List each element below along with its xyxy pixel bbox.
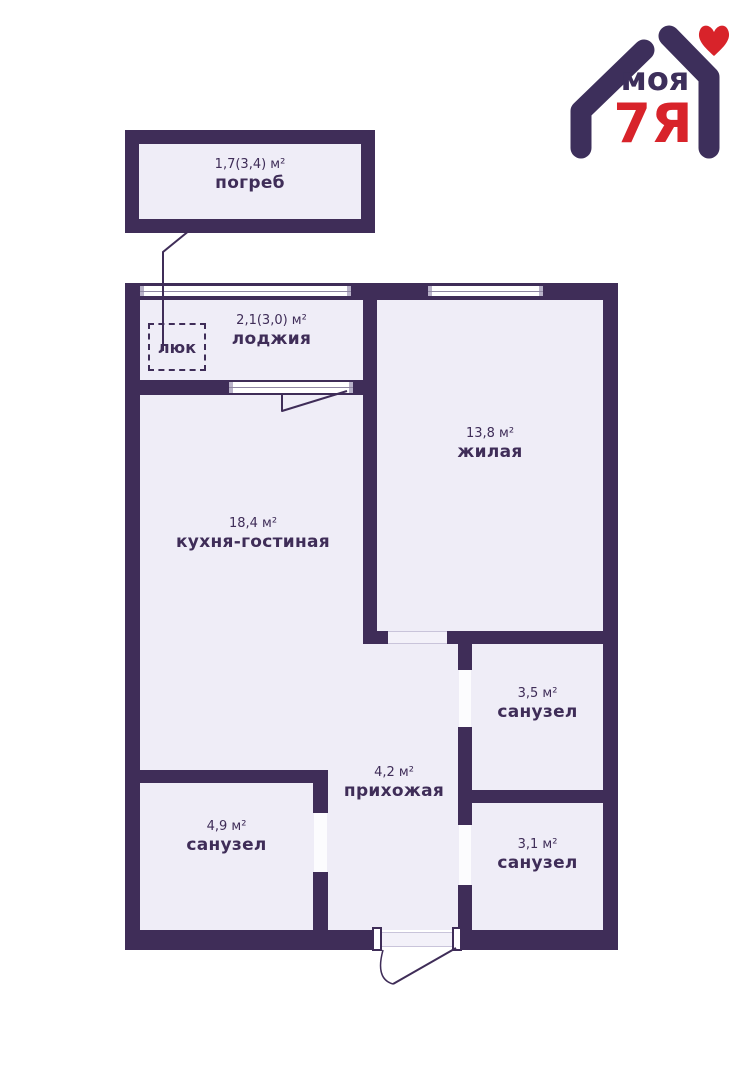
cellar-floor — [139, 144, 361, 219]
window — [427, 285, 544, 297]
wall — [458, 790, 618, 803]
door-gap — [459, 825, 471, 885]
logo-family: 7Я — [613, 92, 692, 155]
wall — [453, 930, 618, 950]
door-gap — [314, 813, 327, 872]
hatch-label: люк — [158, 338, 196, 357]
hatch-box: люк — [148, 323, 206, 371]
floor-plan: моя 7Я люк — [0, 0, 749, 1080]
wall — [363, 283, 377, 643]
wall — [125, 130, 139, 233]
wall — [458, 803, 472, 825]
wall — [603, 283, 618, 950]
balcony-window — [228, 381, 354, 394]
wall — [125, 283, 140, 950]
wall — [458, 644, 472, 670]
wall — [363, 631, 388, 644]
door-jamb — [372, 927, 382, 951]
door-jamb — [452, 927, 462, 951]
wall — [313, 872, 328, 930]
wall — [140, 770, 328, 783]
agency-logo: моя 7Я — [556, 16, 744, 164]
door-gap — [459, 670, 471, 727]
entrance-door-arc — [381, 950, 393, 984]
wall — [458, 727, 472, 790]
window — [139, 285, 352, 297]
wall — [313, 770, 328, 813]
entrance-door-leaf — [393, 948, 456, 984]
wall — [125, 930, 382, 950]
doorway-opening — [388, 631, 447, 644]
wall — [447, 631, 618, 644]
entrance-opening — [382, 932, 452, 947]
wall — [361, 130, 375, 233]
wall — [458, 885, 472, 930]
heart-icon — [699, 26, 729, 56]
wall — [125, 130, 375, 144]
wall — [125, 219, 375, 233]
